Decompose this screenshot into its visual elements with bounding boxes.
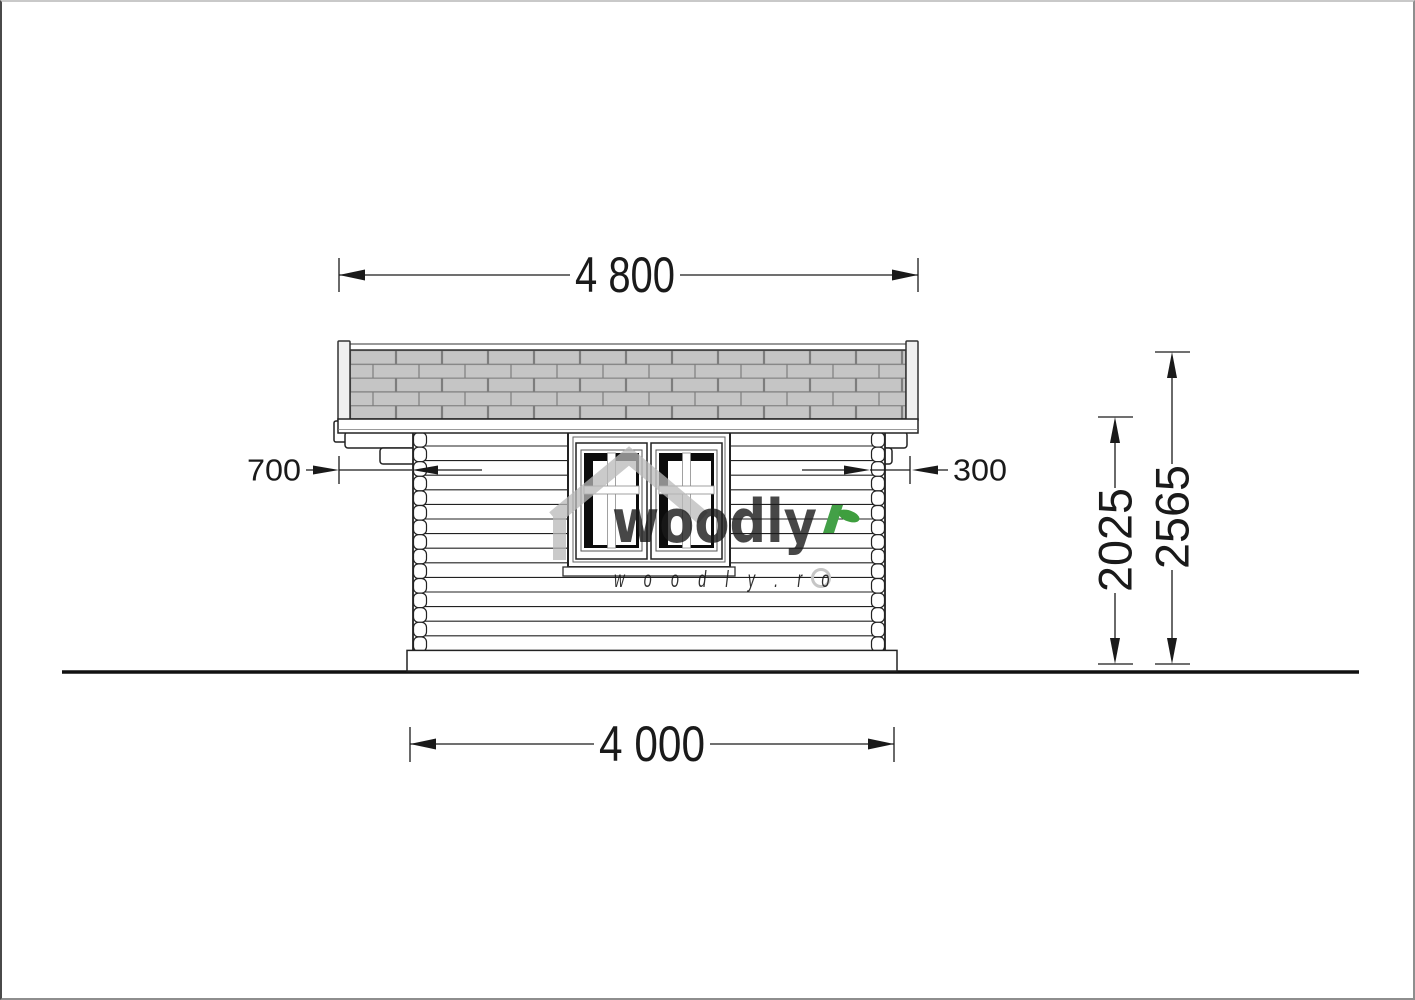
roof-shingles (350, 350, 906, 419)
watermark-site-text: w o o d l y . r o (614, 566, 837, 592)
dim-label-base-length: 4 000 (599, 716, 705, 772)
dimension-eave-height: 2025 (1089, 417, 1142, 664)
dimension-base-length: 4 000 (410, 716, 894, 772)
drawing-page: 4 800 4 000 700 300 2025 2565 (0, 0, 1415, 1000)
elevation-drawing: 4 800 4 000 700 300 2025 2565 (2, 2, 1415, 1000)
roof-fascia (338, 419, 918, 433)
dim-label-right-overhang: 300 (953, 453, 1007, 488)
roof-end-cap-right (906, 341, 918, 421)
dimension-ridge-height: 2565 (1146, 352, 1199, 664)
corner-log-ends-left (414, 433, 427, 652)
dim-label-left-overhang: 700 (247, 453, 301, 488)
dim-label-ridge-height: 2565 (1146, 465, 1199, 569)
corner-log-ends-right (872, 433, 885, 652)
roof-end-cap-left (338, 341, 350, 421)
dimension-roof-length: 4 800 (339, 247, 918, 303)
watermark-logo-text: woodly (612, 487, 817, 557)
roof (338, 341, 918, 433)
dim-label-roof-length: 4 800 (575, 247, 675, 303)
roof-ridge-strip (350, 344, 906, 350)
base-skirt-board (407, 650, 897, 671)
dim-label-eave-height: 2025 (1089, 488, 1142, 592)
